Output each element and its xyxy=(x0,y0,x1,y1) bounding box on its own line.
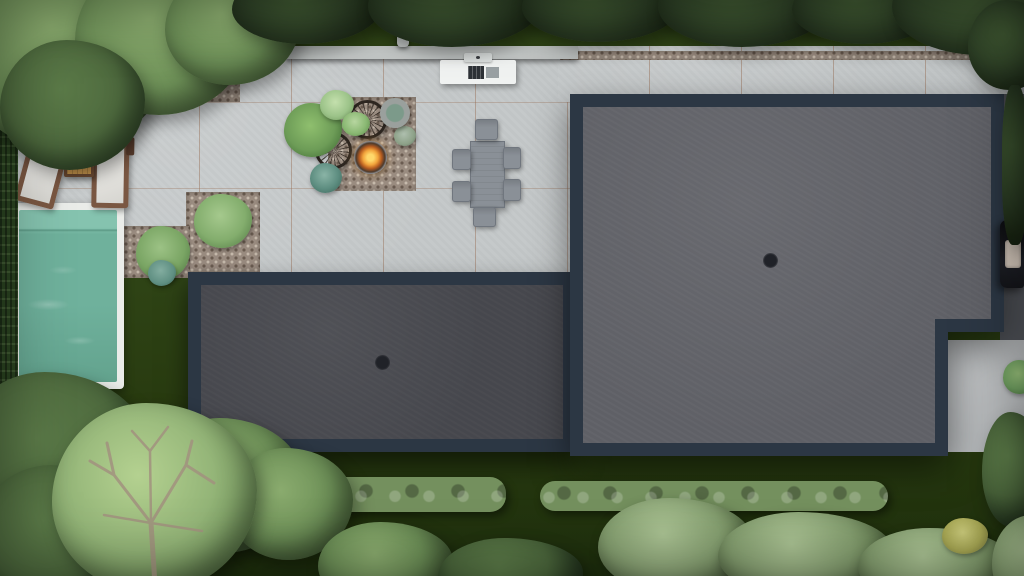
bbq-island xyxy=(440,60,516,84)
shrub-cluster xyxy=(992,515,1024,576)
roof-drain xyxy=(375,355,390,370)
blue-grass-plant xyxy=(148,260,176,286)
dining-chair xyxy=(452,181,471,202)
bbq-lid xyxy=(464,53,492,62)
dining-chair xyxy=(452,149,471,170)
dining-chair xyxy=(475,119,498,140)
dining-chair xyxy=(503,179,521,201)
conifer-canopy-edge xyxy=(1002,85,1024,245)
pebble-border-north xyxy=(560,51,1010,60)
tree-branches xyxy=(52,403,257,576)
bbq-grate xyxy=(468,66,484,79)
pool-water xyxy=(19,210,117,382)
bbq-lid-handle xyxy=(476,56,480,59)
dining-table xyxy=(470,141,505,208)
concrete-bench-north xyxy=(286,46,578,59)
conifer-canopy xyxy=(368,0,543,47)
dining-chair xyxy=(473,207,496,227)
dining-chair xyxy=(503,147,521,169)
bbq-side-burner xyxy=(486,67,499,78)
aerial-site-render xyxy=(0,0,1024,576)
tree-canopy xyxy=(438,538,583,576)
roof-drain xyxy=(763,253,778,268)
swimming-pool xyxy=(12,203,124,389)
fire-pit xyxy=(354,141,387,174)
feature-tree-with-branches xyxy=(52,403,257,576)
main-house-roof xyxy=(570,94,1004,456)
planter-vase xyxy=(380,98,410,128)
